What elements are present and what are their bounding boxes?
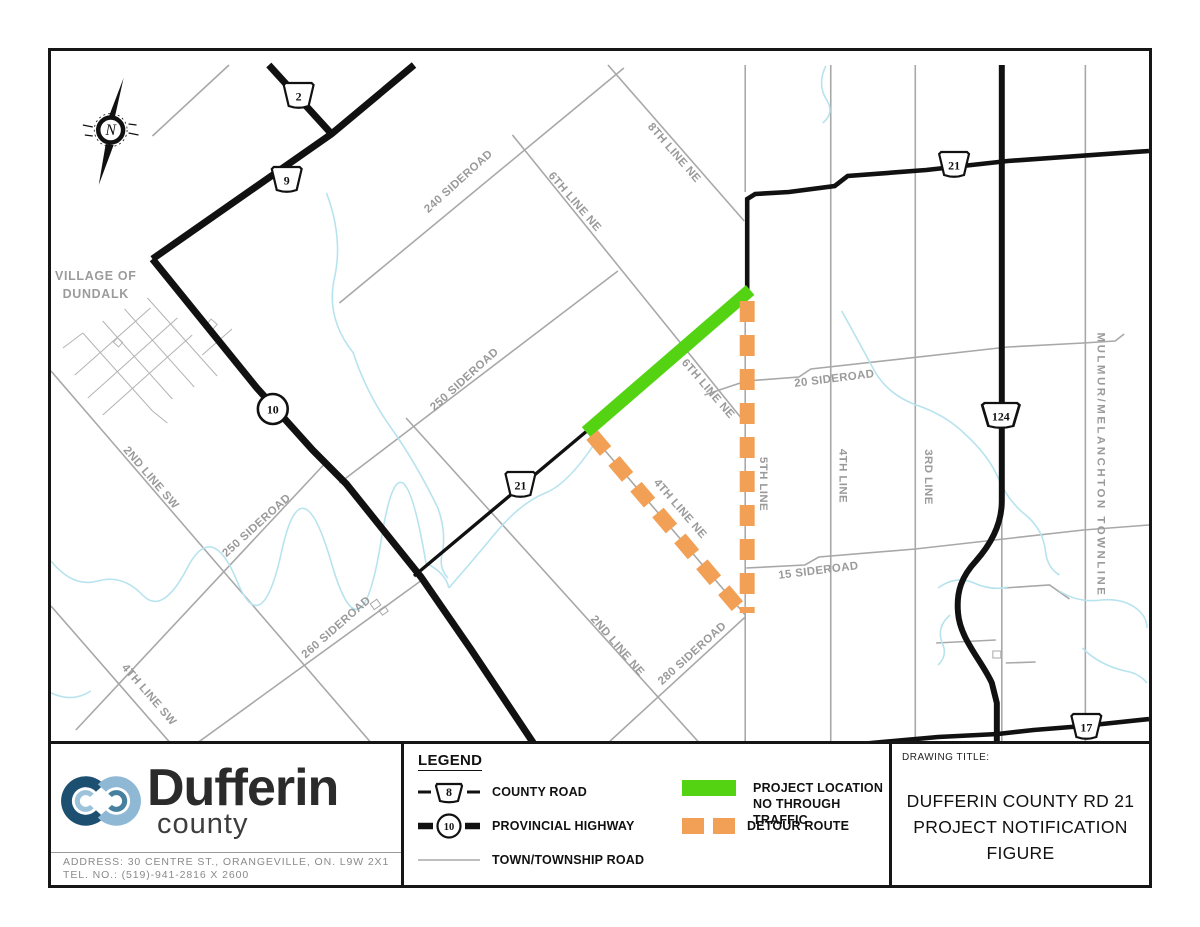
county-road-symbol: 8	[418, 778, 480, 806]
village-of-dundalk-label-line1: VILLAGE OF	[55, 269, 136, 283]
legend-county-label: COUNTY ROAD	[492, 785, 587, 799]
road-label-2nd-line-sw: 2ND LINE SW	[121, 444, 181, 511]
phone-line: TEL. NO.: (519)-941-2816 X 2600	[63, 869, 401, 882]
map-canvas: N 240 SIDEROAD6TH LINE NE8TH LINE NE250 …	[51, 51, 1149, 741]
road-20-sideroad	[704, 334, 1124, 395]
buildings	[370, 599, 1001, 658]
drawing-title-line2: PROJECT NOTIFICATION FIGURE	[892, 814, 1149, 866]
legend-provincial-shield-number: 10	[444, 822, 455, 833]
shield-number: 10	[267, 402, 279, 416]
stream-east	[842, 311, 1060, 575]
road-label-3rd-line: 3RD LINE	[922, 449, 934, 505]
road-label-2nd-line-ne: 2ND LINE NE	[588, 613, 647, 678]
dufferin-county-logo-icon	[61, 762, 141, 840]
map-labels-layer: 240 SIDEROAD6TH LINE NE8TH LINE NE250 SI…	[55, 83, 1106, 739]
township-road-symbol	[418, 846, 480, 874]
legend-title: LEGEND	[418, 752, 482, 771]
detour-route	[592, 301, 747, 613]
logo-arc-light	[98, 776, 141, 825]
stream-north	[822, 66, 830, 123]
legend-row-township-road: TOWN/TOWNSHIP ROAD	[418, 846, 644, 874]
road-280-sideroad	[608, 617, 745, 741]
logo-texts: Dufferin county	[147, 762, 338, 839]
road-2nd-line-sw	[51, 371, 371, 741]
road-label-250-sideroad: 250 SIDEROAD	[428, 346, 501, 414]
logo-arc-dark	[61, 776, 104, 825]
shield-number: 2	[296, 89, 302, 103]
drawing-title: DUFFERIN COUNTY RD 21 PROJECT NOTIFICATI…	[892, 788, 1149, 866]
detour-dash	[682, 818, 704, 834]
road-label-260-sideroad: 260 SIDEROAD	[300, 594, 374, 661]
legend-project-line1: PROJECT LOCATION	[753, 780, 889, 796]
legend-block: LEGEND 8 COUNTY ROAD 10 PROVINCIAL HIGHW…	[401, 744, 889, 885]
drawing-title-label: DRAWING TITLE:	[902, 752, 990, 763]
detour-dash	[713, 818, 735, 834]
stream-ponds	[51, 580, 1147, 698]
road-label-8th-line-ne: 8TH LINE NE	[645, 121, 703, 185]
address-box: ADDRESS: 30 CENTRE ST., ORANGEVILLE, ON.…	[51, 852, 401, 882]
compass-south-blade	[99, 144, 114, 185]
road-label-6th-line-ne: 6TH LINE NE	[679, 357, 737, 421]
road-250-sideroad-upper	[339, 271, 617, 483]
highway-10	[152, 259, 533, 741]
road-label-4th-line: 4TH LINE	[837, 449, 849, 503]
north-arrow: N	[83, 78, 139, 185]
road-label-240-sideroad: 240 SIDEROAD	[422, 148, 495, 216]
stream-west	[51, 482, 449, 609]
road-label-6th-line-ne: 6TH LINE NE	[546, 170, 604, 234]
legend-detour-label: DETOUR ROUTE	[747, 818, 849, 834]
drawing-title-block: DRAWING TITLE: DUFFERIN COUNTY RD 21 PRO…	[889, 744, 1149, 885]
route-shield-2: 2	[284, 83, 314, 108]
legend-row-county-road: 8 COUNTY ROAD	[418, 778, 587, 806]
stream-west-branch	[449, 435, 600, 588]
route-shield-124: 124	[982, 403, 1019, 428]
road-label-280-sideroad: 280 SIDEROAD	[656, 620, 729, 688]
shield-number: 17	[1080, 720, 1092, 734]
title-strip: Dufferin county ADDRESS: 30 CENTRE ST., …	[51, 741, 1149, 885]
legend-township-label: TOWN/TOWNSHIP ROAD	[492, 853, 644, 867]
shield-number: 21	[514, 478, 526, 492]
drawing-title-line1: DUFFERIN COUNTY RD 21	[892, 788, 1149, 814]
shield-number: 9	[284, 173, 290, 187]
shield-number: 21	[948, 158, 960, 172]
road-240-sideroad	[339, 68, 623, 303]
provincial-highway-symbol: 10	[418, 812, 480, 840]
legend-row-detour-route: DETOUR ROUTE	[682, 818, 849, 834]
highway-9	[152, 65, 414, 259]
logo-wordmark: Dufferin	[147, 762, 338, 814]
map-area: N 240 SIDEROAD6TH LINE NE8TH LINE NE250 …	[51, 51, 1149, 741]
road-top-left-spur	[152, 65, 229, 136]
streams	[51, 66, 1147, 698]
road-label-15-sideroad: 15 SIDEROAD	[778, 560, 859, 582]
road-label-20-sideroad: 20 SIDEROAD	[794, 368, 875, 390]
village-of-dundalk-label-line2: DUNDALK	[63, 287, 129, 301]
address-line: ADDRESS: 30 CENTRE ST., ORANGEVILLE, ON.…	[63, 856, 401, 869]
road-260-sideroad	[197, 580, 422, 741]
route-shield-21: 21	[506, 472, 536, 497]
county-road-21-west	[414, 430, 588, 576]
shield-number: 124	[992, 409, 1010, 423]
drawing-sheet: N 240 SIDEROAD6TH LINE NE8TH LINE NE250 …	[48, 48, 1152, 888]
logo-block: Dufferin county ADDRESS: 30 CENTRE ST., …	[51, 744, 401, 885]
road-2nd-line-ne	[406, 418, 699, 741]
road-label-5th-line: 5TH LINE	[757, 457, 769, 511]
logo-arc-mid-small	[108, 790, 127, 812]
route-shield-17: 17	[1071, 714, 1101, 739]
logo-row: Dufferin county	[61, 762, 338, 840]
route-shield-9: 9	[272, 167, 302, 192]
road-label-4th-line-ne: 4TH LINE NE	[651, 477, 709, 541]
project-location-swatch	[682, 780, 736, 796]
road-label-mulmur-melanchton-townline: MULMUR/MELANCHTON TOWNLINE	[1094, 333, 1106, 598]
detour-route-swatch	[682, 818, 735, 834]
dundalk-street-grid	[63, 298, 232, 423]
legend-provincial-label: PROVINCIAL HIGHWAY	[492, 819, 635, 833]
road-8th-line-ne	[608, 65, 744, 221]
route-shield-10: 10	[258, 394, 288, 424]
stream-dundalk	[326, 193, 447, 578]
road-4th-line-sw	[51, 606, 170, 741]
road-15-sideroad	[746, 525, 1149, 568]
legend-county-shield-number: 8	[446, 785, 452, 799]
route-shield-21: 21	[939, 152, 969, 177]
compass-north-blade	[109, 78, 124, 118]
highway-17	[861, 719, 1149, 741]
logo-arc-light-small	[75, 790, 94, 812]
compass-n-letter: N	[104, 122, 117, 139]
legend-row-provincial-highway: 10 PROVINCIAL HIGHWAY	[418, 812, 635, 840]
